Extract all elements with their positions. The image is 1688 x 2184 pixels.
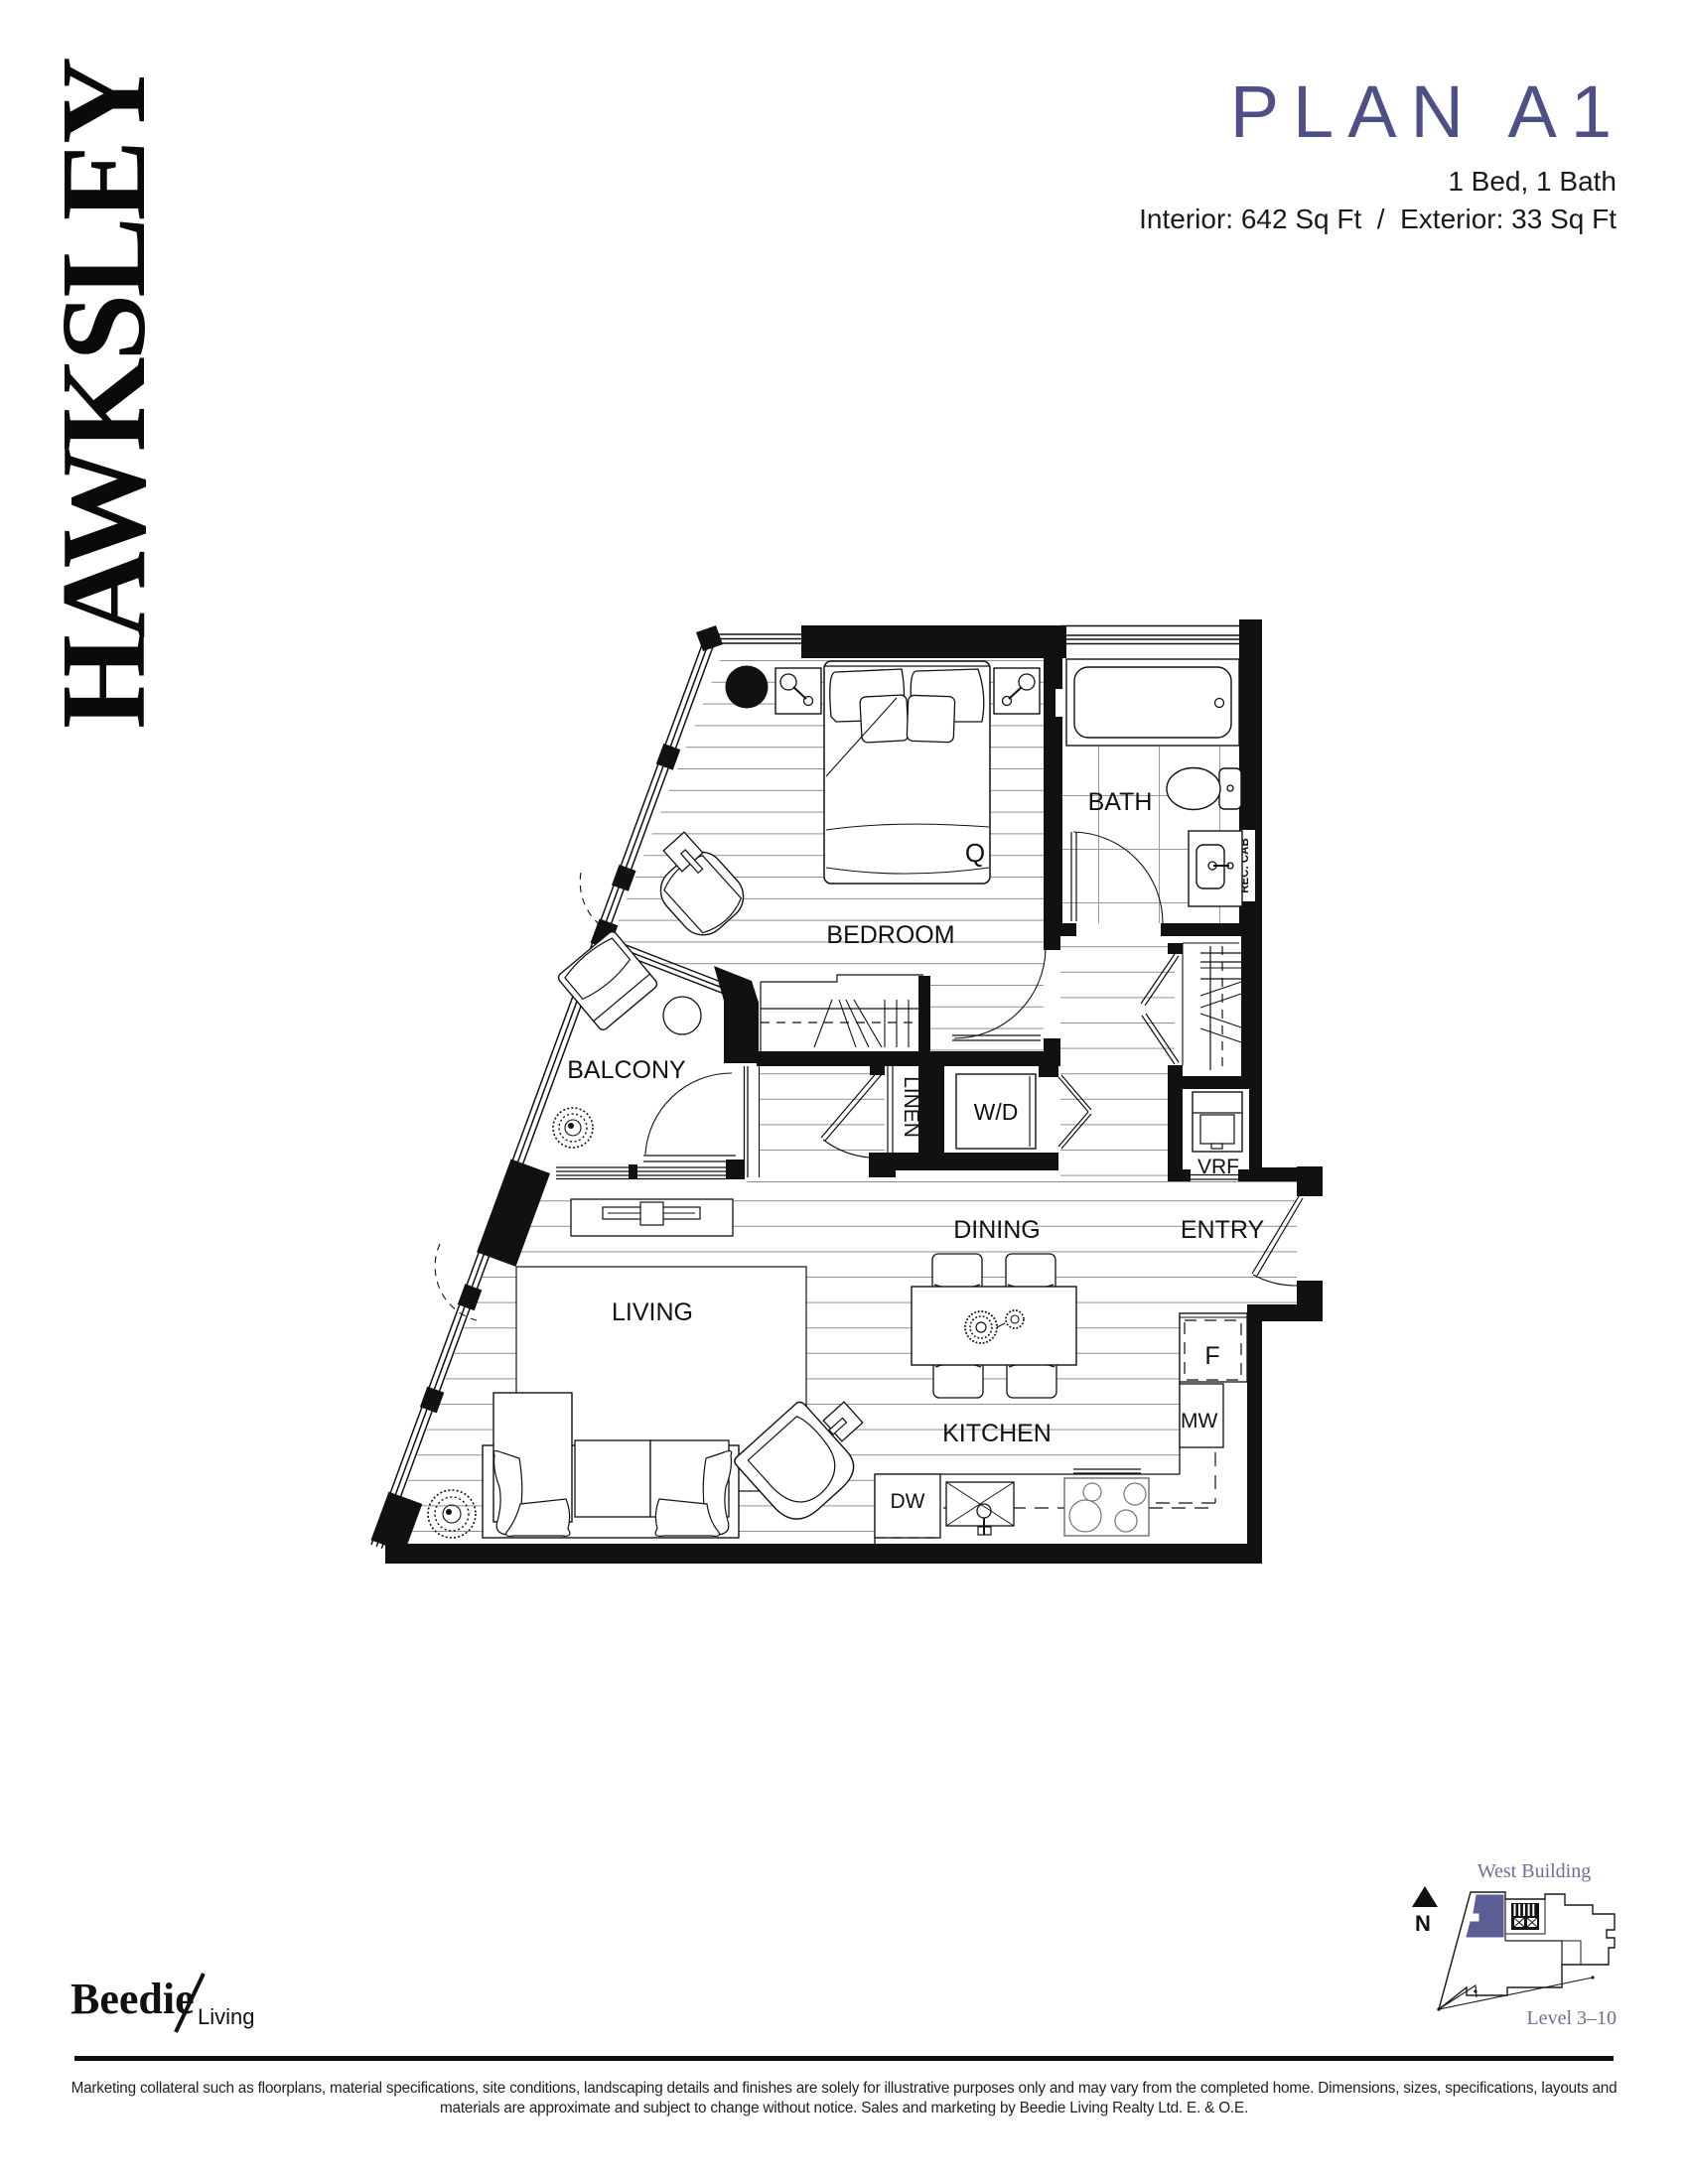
svg-text:DINING: DINING xyxy=(953,1216,1041,1244)
svg-text:KITCHEN: KITCHEN xyxy=(942,1420,1052,1447)
svg-text:LIVING: LIVING xyxy=(612,1298,693,1326)
svg-text:VRF: VRF xyxy=(1197,1156,1239,1178)
svg-text:F: F xyxy=(1204,1342,1219,1370)
svg-text:N: N xyxy=(1415,1911,1431,1936)
svg-text:ENTRY: ENTRY xyxy=(1181,1216,1265,1244)
svg-text:BALCONY: BALCONY xyxy=(567,1056,686,1084)
svg-text:MW: MW xyxy=(1181,1410,1217,1433)
svg-text:BATH: BATH xyxy=(1088,788,1153,816)
svg-text:BEDROOM: BEDROOM xyxy=(826,921,954,949)
svg-text:LINEN: LINEN xyxy=(900,1076,922,1138)
svg-text:W/D: W/D xyxy=(974,1099,1019,1125)
svg-text:Q: Q xyxy=(965,838,985,868)
svg-text:DW: DW xyxy=(891,1490,925,1513)
